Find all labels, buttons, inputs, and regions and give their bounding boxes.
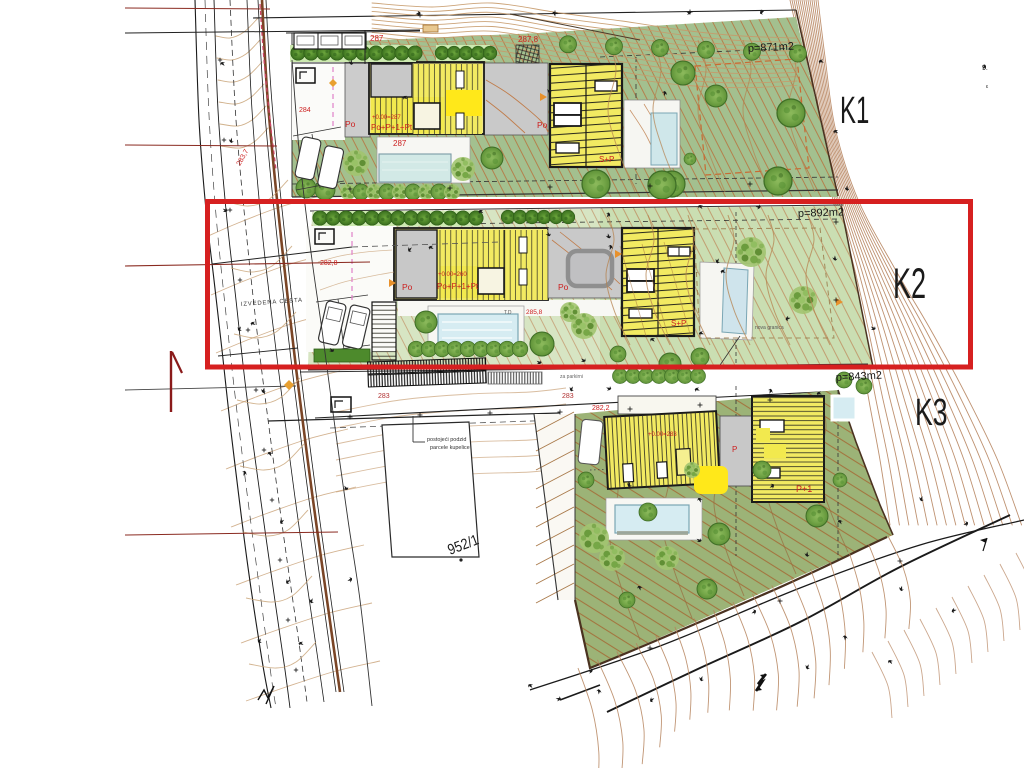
svg-text:287: 287 (393, 139, 407, 148)
svg-text:T.D: T.D (504, 310, 512, 316)
svg-text:p=871m2: p=871m2 (748, 41, 795, 55)
svg-text:287: 287 (370, 34, 384, 43)
svg-text:Po: Po (558, 282, 569, 292)
svg-text:Po+P+1+Pt: Po+P+1+Pt (437, 282, 479, 291)
svg-text:287,8: 287,8 (518, 35, 539, 44)
svg-text:284: 284 (299, 107, 311, 114)
svg-text:283: 283 (562, 393, 574, 400)
svg-text:nova granica: nova granica (755, 325, 784, 331)
svg-text:K3: K3 (915, 390, 948, 433)
svg-text:P+1: P+1 (796, 484, 812, 494)
svg-text:283: 283 (378, 393, 390, 400)
svg-text:+0.00=283: +0.00=283 (648, 432, 677, 438)
svg-text:Po: Po (345, 119, 356, 129)
svg-text:282,8: 282,8 (320, 260, 338, 267)
svg-text:postojeći podzid: postojeći podzid (427, 437, 466, 443)
svg-text:S+P: S+P (671, 319, 686, 328)
svg-text:+0.00=287: +0.00=287 (372, 115, 401, 121)
svg-text:Po: Po (537, 120, 548, 130)
svg-text:S+P: S+P (599, 155, 614, 164)
svg-text:p=892m2: p=892m2 (798, 206, 845, 220)
svg-text:K1: K1 (840, 88, 869, 131)
svg-text:K2: K2 (893, 259, 926, 308)
svg-text:+0.00=260: +0.00=260 (438, 272, 467, 278)
svg-text:parcele kupelice: parcele kupelice (430, 445, 470, 451)
svg-text:p=843m2: p=843m2 (836, 370, 883, 384)
svg-text:285,8: 285,8 (526, 309, 543, 316)
svg-text:282,2: 282,2 (592, 405, 610, 412)
svg-text:Po+P+1+Pt: Po+P+1+Pt (371, 123, 413, 132)
svg-text:Po: Po (402, 282, 413, 292)
svg-text:P: P (732, 445, 737, 454)
svg-text:za parkirni: za parkirni (560, 374, 583, 380)
